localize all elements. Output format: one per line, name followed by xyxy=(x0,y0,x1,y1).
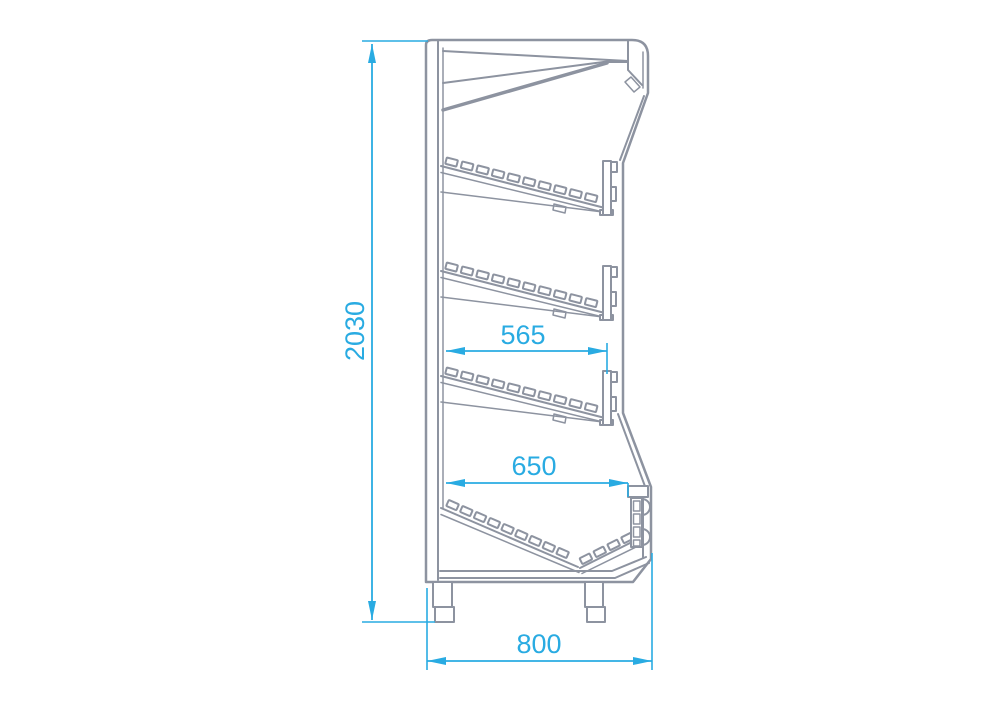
rear-lower-inner-diagonal xyxy=(618,414,646,489)
cabinet-side-section-drawing: 2030 565 650 800 xyxy=(0,0,1000,714)
rear-bumper-coil xyxy=(628,486,650,547)
shelf-2 xyxy=(441,262,617,320)
dim-shelf-depth: 565 xyxy=(446,320,607,374)
dim-shelf-depth-label: 565 xyxy=(500,320,545,350)
bottom-well-right-board xyxy=(580,533,638,574)
dim-overall-height: 2030 xyxy=(340,41,435,622)
top-deflector-line xyxy=(443,61,611,83)
technical-drawing-page: 2030 565 650 800 xyxy=(0,0,1000,714)
top-glass-panel-line xyxy=(443,63,607,110)
cabinet-outer-profile xyxy=(426,40,651,582)
shelf-3 xyxy=(441,367,617,425)
dim-overall-depth-label: 800 xyxy=(516,629,561,659)
dim-well-depth-label: 650 xyxy=(511,451,556,481)
canopy-inner-diagonal xyxy=(620,96,644,160)
bottom-well-left-board xyxy=(441,500,579,573)
dim-overall-height-label: 2030 xyxy=(340,301,370,361)
dimension-group: 2030 565 650 800 xyxy=(340,41,652,670)
top-duct-panel-line xyxy=(443,51,628,61)
leg-rear xyxy=(585,582,605,622)
base-plate xyxy=(440,557,649,578)
shelf-1 xyxy=(441,157,617,215)
leg-front xyxy=(433,582,454,622)
dim-well-depth: 650 xyxy=(446,451,628,497)
